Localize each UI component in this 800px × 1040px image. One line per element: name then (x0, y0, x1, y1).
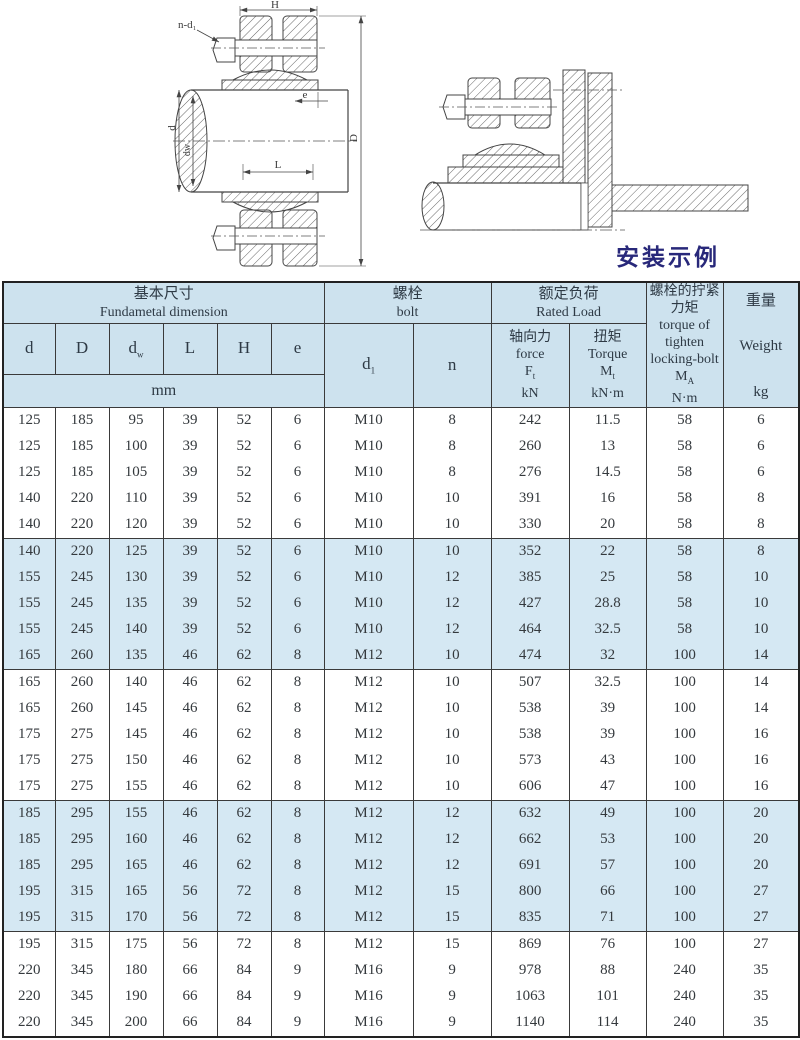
cell: 20 (723, 827, 799, 853)
cell: 100 (646, 905, 723, 932)
cell: 200 (109, 1010, 163, 1037)
cell: 240 (646, 1010, 723, 1037)
cell: 56 (163, 931, 217, 958)
catalog-page: { "page": { "background": "#ffffff" }, "… (0, 0, 800, 1040)
cell: 52 (217, 617, 271, 643)
cell: 165 (109, 853, 163, 879)
cell: 100 (109, 434, 163, 460)
cell: M10 (324, 486, 413, 512)
table-row: 22034519066849M169106310124035 (3, 984, 799, 1010)
col-L: L (163, 323, 217, 374)
cell: 315 (55, 931, 109, 958)
table-row: 14022012039526M101033020588 (3, 512, 799, 539)
cell: 6 (271, 460, 324, 486)
weight-unit: kg (753, 384, 768, 401)
table-row: 15524513039526M1012385255810 (3, 565, 799, 591)
cell: 62 (217, 696, 271, 722)
cell: 46 (163, 853, 217, 879)
cell: 175 (109, 931, 163, 958)
spec-table-wrap: 基本尺寸 Fundametal dimension 螺栓 bolt 额定负荷 R… (0, 281, 800, 1038)
cell: 245 (55, 617, 109, 643)
cell: 125 (3, 434, 55, 460)
cell: 185 (3, 800, 55, 827)
dim-H-label: H (271, 0, 279, 11)
col-D: D (55, 323, 109, 374)
cell: 100 (646, 931, 723, 958)
cell: 185 (55, 434, 109, 460)
cell: 260 (55, 669, 109, 696)
cell: 39 (163, 486, 217, 512)
cell: 52 (217, 565, 271, 591)
cell: M12 (324, 774, 413, 801)
col-force: 轴向力 force Ft kN (491, 323, 569, 407)
cell: 62 (217, 853, 271, 879)
cell: 39 (163, 565, 217, 591)
cell: 125 (3, 460, 55, 486)
cell: 58 (646, 565, 723, 591)
cell: 52 (217, 538, 271, 565)
cell: M10 (324, 460, 413, 486)
cell: 10 (413, 774, 491, 801)
cell: 507 (491, 669, 569, 696)
cell: 10 (413, 722, 491, 748)
cell: 95 (109, 407, 163, 434)
cell: 155 (3, 565, 55, 591)
basic-en: Fundametal dimension (4, 304, 324, 321)
cell: M12 (324, 643, 413, 670)
cell: 12 (413, 853, 491, 879)
cell: 32.5 (569, 617, 646, 643)
cell: 56 (163, 905, 217, 932)
cell: 391 (491, 486, 569, 512)
cell: 155 (109, 774, 163, 801)
cell: 140 (3, 538, 55, 565)
cell: 16 (723, 774, 799, 801)
cell: 220 (55, 538, 109, 565)
cell: 66 (163, 1010, 217, 1037)
load-zh: 额定负荷 (492, 285, 646, 304)
cell: 88 (569, 958, 646, 984)
cell: 10 (723, 565, 799, 591)
cell: 538 (491, 722, 569, 748)
cell: M12 (324, 827, 413, 853)
cell: 195 (3, 879, 55, 905)
dim-nd1-label: n-d₁ (178, 19, 197, 31)
cell: 245 (55, 565, 109, 591)
cell: 62 (217, 774, 271, 801)
cell: 12 (413, 591, 491, 617)
table-row: 19531517556728M12158697610027 (3, 931, 799, 958)
table-row: 18529516046628M12126625310020 (3, 827, 799, 853)
cell: 84 (217, 1010, 271, 1037)
cell: 9 (271, 1010, 324, 1037)
cell: 140 (109, 669, 163, 696)
cell: 606 (491, 774, 569, 801)
cell: 315 (55, 879, 109, 905)
cell: 538 (491, 696, 569, 722)
cell: 57 (569, 853, 646, 879)
cell: 573 (491, 748, 569, 774)
cell: 165 (3, 669, 55, 696)
cell: 9 (413, 984, 491, 1010)
cell: M12 (324, 879, 413, 905)
cell: M12 (324, 853, 413, 879)
spec-table: 基本尺寸 Fundametal dimension 螺栓 bolt 额定负荷 R… (2, 281, 800, 1038)
dim-dw-label: dw (182, 143, 193, 156)
cell: 16 (569, 486, 646, 512)
cell: 160 (109, 827, 163, 853)
table-row: 15524514039526M101246432.55810 (3, 617, 799, 643)
cell: 10 (413, 486, 491, 512)
cell: M10 (324, 407, 413, 434)
table-row: 17527515546628M12106064710016 (3, 774, 799, 801)
cell: 8 (413, 434, 491, 460)
cell: 245 (55, 591, 109, 617)
cell: 195 (3, 905, 55, 932)
cell: 58 (646, 591, 723, 617)
cell: 10 (413, 643, 491, 670)
cell: 8 (271, 669, 324, 696)
cell: 49 (569, 800, 646, 827)
cell: 8 (271, 643, 324, 670)
col-e: e (271, 323, 324, 374)
cell: 46 (163, 774, 217, 801)
col-n: n (413, 323, 491, 407)
cell: 10 (413, 669, 491, 696)
cell: 28.8 (569, 591, 646, 617)
cell: M12 (324, 905, 413, 932)
cell: 6 (271, 434, 324, 460)
cell: 140 (3, 486, 55, 512)
cell: 125 (3, 407, 55, 434)
cell: 39 (569, 722, 646, 748)
cell: 52 (217, 486, 271, 512)
cell: 20 (723, 800, 799, 827)
cell: 295 (55, 800, 109, 827)
table-row: 22034518066849M1699788824035 (3, 958, 799, 984)
cell: 62 (217, 827, 271, 853)
cell: 56 (163, 879, 217, 905)
cell: 220 (55, 486, 109, 512)
cell: 35 (723, 984, 799, 1010)
cell: 62 (217, 722, 271, 748)
cell: 6 (723, 407, 799, 434)
cell: 100 (646, 696, 723, 722)
cell: 46 (163, 800, 217, 827)
cell: 175 (3, 748, 55, 774)
cell: 47 (569, 774, 646, 801)
cell: 16 (723, 722, 799, 748)
cell: 15 (413, 905, 491, 932)
cell: 12 (413, 617, 491, 643)
cell: 10 (413, 696, 491, 722)
cell: 8 (413, 460, 491, 486)
torque-zh: 扭矩 (570, 329, 646, 346)
cell: 345 (55, 958, 109, 984)
cell: 25 (569, 565, 646, 591)
cell: 71 (569, 905, 646, 932)
cell: 35 (723, 958, 799, 984)
cell: 110 (109, 486, 163, 512)
cell: 295 (55, 827, 109, 853)
cell: 14 (723, 643, 799, 670)
cell: 6 (271, 538, 324, 565)
cell: M16 (324, 1010, 413, 1037)
cell: 8 (271, 853, 324, 879)
cell: 8 (271, 722, 324, 748)
bolt-zh: 螺栓 (325, 285, 491, 304)
cell: 16 (723, 748, 799, 774)
installation-caption: 安装示例 (616, 238, 766, 272)
cell: 691 (491, 853, 569, 879)
cell: 58 (646, 460, 723, 486)
cell: 275 (55, 722, 109, 748)
cell: 62 (217, 643, 271, 670)
cell: 39 (163, 538, 217, 565)
cell: 155 (109, 800, 163, 827)
cell: 175 (3, 774, 55, 801)
cell: 345 (55, 984, 109, 1010)
table-header: 基本尺寸 Fundametal dimension 螺栓 bolt 额定负荷 R… (3, 282, 799, 407)
cell: 275 (55, 774, 109, 801)
cell: 180 (109, 958, 163, 984)
col-d: d (3, 323, 55, 374)
cell: 105 (109, 460, 163, 486)
force-zh: 轴向力 (492, 329, 569, 346)
cell: 6 (271, 565, 324, 591)
cell: 125 (109, 538, 163, 565)
cell: 39 (163, 407, 217, 434)
col-torque: 扭矩 Torque Mt kN·m (569, 323, 646, 407)
cell: 9 (413, 1010, 491, 1037)
cell: M10 (324, 538, 413, 565)
cell: 66 (163, 984, 217, 1010)
cell: 6 (271, 591, 324, 617)
cell: 39 (163, 617, 217, 643)
cell: 155 (3, 591, 55, 617)
col-dw: dw (109, 323, 163, 374)
cell: 120 (109, 512, 163, 539)
table-row: 16526014546628M12105383910014 (3, 696, 799, 722)
cell: 150 (109, 748, 163, 774)
torque-symbol: Mt (570, 363, 646, 385)
cell: M16 (324, 984, 413, 1010)
table-row: 16526014046628M121050732.510014 (3, 669, 799, 696)
cell: 22 (569, 538, 646, 565)
cell: 6 (271, 407, 324, 434)
cell: 6 (271, 617, 324, 643)
cell: 352 (491, 538, 569, 565)
cell: 662 (491, 827, 569, 853)
cell: 15 (413, 879, 491, 905)
cell: 39 (163, 460, 217, 486)
cell: 11.5 (569, 407, 646, 434)
table-row: 17527514546628M12105383910016 (3, 722, 799, 748)
cell: 165 (3, 643, 55, 670)
table-row: 16526013546628M12104743210014 (3, 643, 799, 670)
table-row: 18529515546628M12126324910020 (3, 800, 799, 827)
cell: 20 (569, 512, 646, 539)
cell: 14.5 (569, 460, 646, 486)
weight-en: Weight (739, 338, 782, 355)
cell: 39 (163, 591, 217, 617)
cell: 84 (217, 958, 271, 984)
cell: 220 (55, 512, 109, 539)
cell: 46 (163, 748, 217, 774)
cell: 170 (109, 905, 163, 932)
torque-en: Torque (570, 346, 646, 363)
cell: 185 (3, 827, 55, 853)
cell: 978 (491, 958, 569, 984)
cell: 165 (3, 696, 55, 722)
cell: 100 (646, 774, 723, 801)
table-row: 12518510539526M10827614.5586 (3, 460, 799, 486)
cell: 114 (569, 1010, 646, 1037)
cell: 345 (55, 1010, 109, 1037)
cell: 39 (569, 696, 646, 722)
col-H: H (217, 323, 271, 374)
weight-zh: 重量 (746, 289, 776, 310)
cell: 8 (413, 407, 491, 434)
cell: 58 (646, 434, 723, 460)
table-row: 14022012539526M101035222588 (3, 538, 799, 565)
cell: 8 (723, 486, 799, 512)
cell: 474 (491, 643, 569, 670)
installation-drawing (415, 55, 775, 240)
cell: 12 (413, 800, 491, 827)
cell: 276 (491, 460, 569, 486)
cell: 13 (569, 434, 646, 460)
tighten-en2: tighten (647, 334, 723, 351)
cell: 315 (55, 905, 109, 932)
cell: 835 (491, 905, 569, 932)
cell: 8 (723, 512, 799, 539)
cell: 8 (271, 774, 324, 801)
cell: 8 (271, 931, 324, 958)
cell: 10 (413, 748, 491, 774)
cell: 52 (217, 434, 271, 460)
cell: 46 (163, 669, 217, 696)
section-drawing: H n-d₁ D d dw L e (85, 0, 385, 280)
cell: 72 (217, 905, 271, 932)
tighten-zh2: 力矩 (647, 300, 723, 317)
cell: 165 (109, 879, 163, 905)
cell: M10 (324, 565, 413, 591)
cell: 135 (109, 643, 163, 670)
cell: 464 (491, 617, 569, 643)
header-rated-load: 额定负荷 Rated Load (491, 282, 646, 323)
cell: 100 (646, 827, 723, 853)
cell: 100 (646, 748, 723, 774)
cell: 27 (723, 931, 799, 958)
cell: 72 (217, 931, 271, 958)
cell: M12 (324, 722, 413, 748)
cell: 32 (569, 643, 646, 670)
cell: 220 (3, 984, 55, 1010)
force-symbol: Ft (492, 363, 569, 385)
table-row: 19531517056728M12158357110027 (3, 905, 799, 932)
cell: 15 (413, 931, 491, 958)
cell: 195 (3, 931, 55, 958)
cell: 145 (109, 722, 163, 748)
cell: 8 (723, 538, 799, 565)
force-en: force (492, 346, 569, 363)
cell: 275 (55, 748, 109, 774)
technical-drawings: H n-d₁ D d dw L e (0, 0, 800, 281)
cell: 52 (217, 591, 271, 617)
cell: M10 (324, 434, 413, 460)
cell: 260 (491, 434, 569, 460)
load-en: Rated Load (492, 304, 646, 321)
force-unit: kN (492, 385, 569, 402)
header-basic-dimension: 基本尺寸 Fundametal dimension (3, 282, 324, 323)
cell: 8 (271, 905, 324, 932)
cell: 72 (217, 879, 271, 905)
cell: 295 (55, 853, 109, 879)
cell: 100 (646, 800, 723, 827)
cell: 869 (491, 931, 569, 958)
cell: 100 (646, 853, 723, 879)
cell: 10 (723, 617, 799, 643)
cell: 62 (217, 748, 271, 774)
table-row: 18529516546628M12126915710020 (3, 853, 799, 879)
cell: 52 (217, 512, 271, 539)
cell: M12 (324, 696, 413, 722)
cell: 100 (646, 722, 723, 748)
cell: 155 (3, 617, 55, 643)
cell: 32.5 (569, 669, 646, 696)
cell: 52 (217, 460, 271, 486)
cell: 800 (491, 879, 569, 905)
cell: 27 (723, 905, 799, 932)
cell: 10 (413, 538, 491, 565)
table-row: 1251859539526M10824211.5586 (3, 407, 799, 434)
cell: M12 (324, 931, 413, 958)
cell: 260 (55, 696, 109, 722)
cell: 6 (271, 512, 324, 539)
tighten-unit: N·m (647, 390, 723, 407)
cell: 260 (55, 643, 109, 670)
cell: 14 (723, 696, 799, 722)
dim-L-label: L (275, 159, 282, 171)
cell: 46 (163, 643, 217, 670)
cell: 140 (109, 617, 163, 643)
dim-D-label: D (348, 134, 360, 142)
cell: 27 (723, 879, 799, 905)
cell: 242 (491, 407, 569, 434)
table-body: 1251859539526M10824211.55861251851003952… (3, 407, 799, 1037)
header-weight: 重量 Weight kg (723, 282, 799, 407)
cell: M10 (324, 617, 413, 643)
cell: 9 (413, 958, 491, 984)
cell: 220 (3, 958, 55, 984)
cell: 58 (646, 407, 723, 434)
cell: 43 (569, 748, 646, 774)
dim-d-label: d (166, 125, 178, 131)
cell: 6 (723, 460, 799, 486)
header-bolt: 螺栓 bolt (324, 282, 491, 323)
cell: M10 (324, 591, 413, 617)
cell: 9 (271, 958, 324, 984)
cell: M16 (324, 958, 413, 984)
cell: M12 (324, 748, 413, 774)
cell: 10 (413, 512, 491, 539)
cell: 135 (109, 591, 163, 617)
cell: 58 (646, 617, 723, 643)
cell: 101 (569, 984, 646, 1010)
table-row: 22034520066849M169114011424035 (3, 1010, 799, 1037)
cell: 190 (109, 984, 163, 1010)
